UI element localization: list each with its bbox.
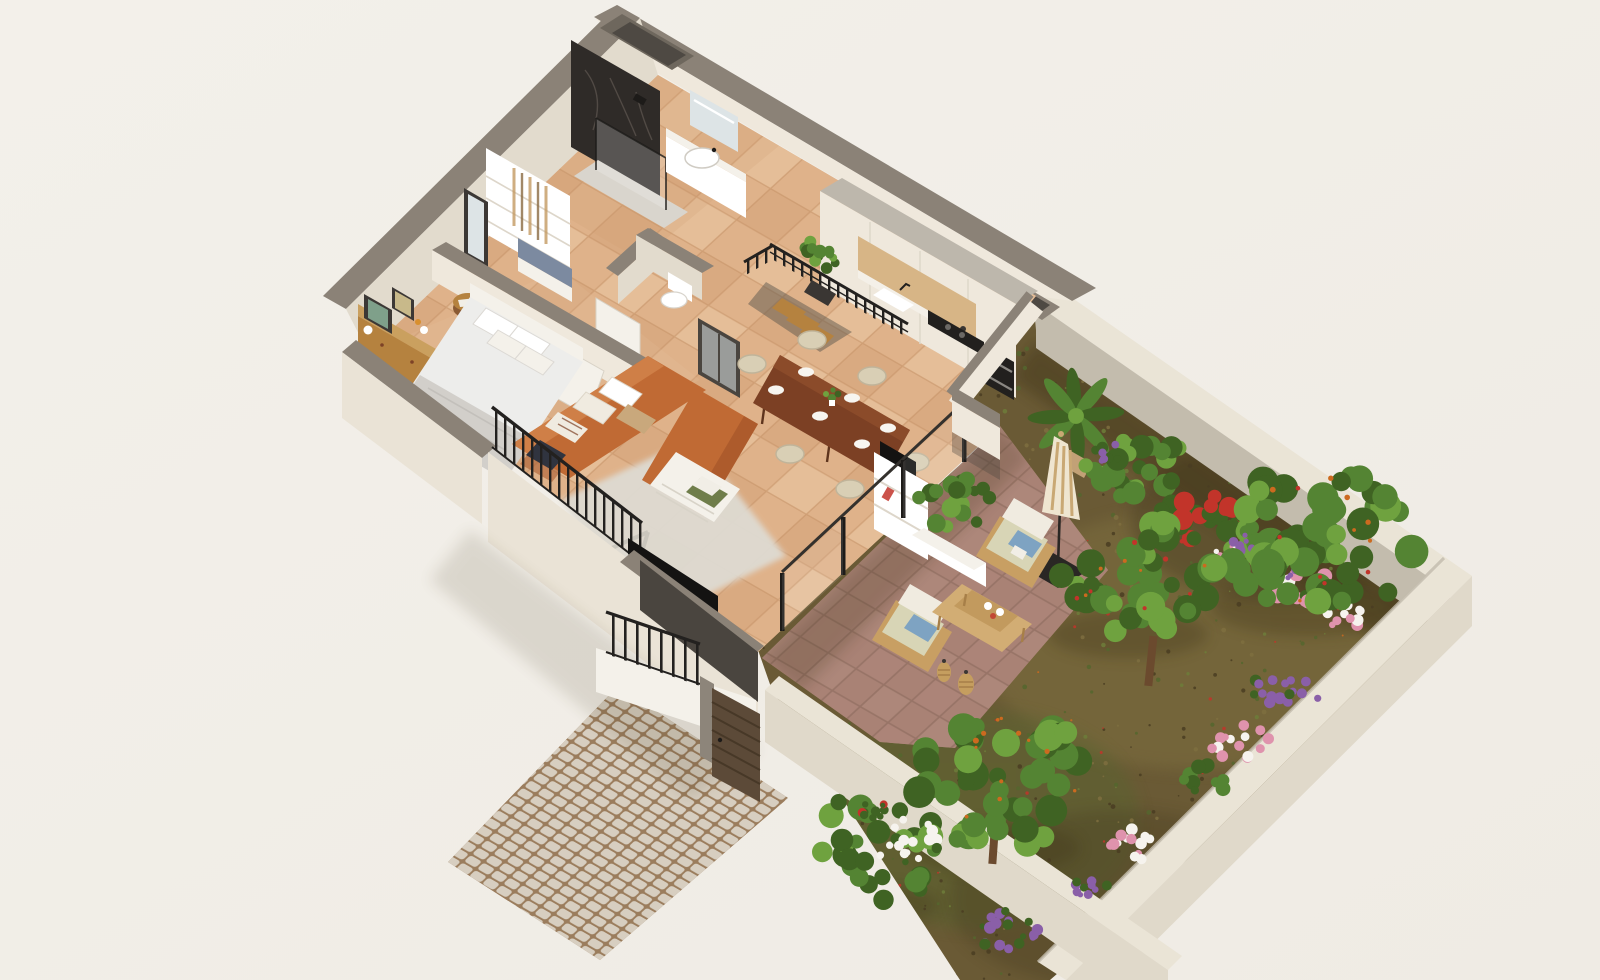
floorplan-scene: 3D isometric render of a ground-floor ap… xyxy=(0,0,1600,980)
place-setting xyxy=(798,367,814,376)
place-setting xyxy=(880,423,896,432)
dining-chair xyxy=(776,445,804,463)
floorplan-render xyxy=(0,0,1600,980)
dining-chair xyxy=(858,367,886,385)
dining-chair xyxy=(798,331,826,349)
place-setting xyxy=(768,385,784,394)
dining-chair xyxy=(738,355,766,373)
dining-chair xyxy=(836,480,864,498)
plant-pot xyxy=(364,326,373,335)
toilet xyxy=(661,292,687,308)
gate-post xyxy=(700,676,714,764)
place-setting xyxy=(854,439,870,448)
place-setting xyxy=(844,393,860,402)
place-setting xyxy=(812,411,828,420)
